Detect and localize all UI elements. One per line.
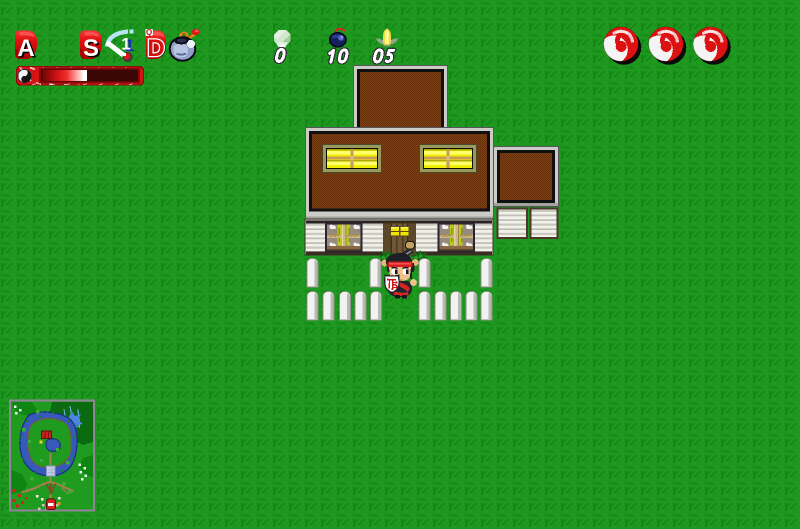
svg-text:1: 1 (121, 34, 130, 53)
svg-text:S: S (83, 35, 99, 62)
svg-text:D: D (147, 35, 164, 62)
svg-text:Q: Q (146, 28, 152, 37)
svg-text:A: A (17, 35, 34, 62)
